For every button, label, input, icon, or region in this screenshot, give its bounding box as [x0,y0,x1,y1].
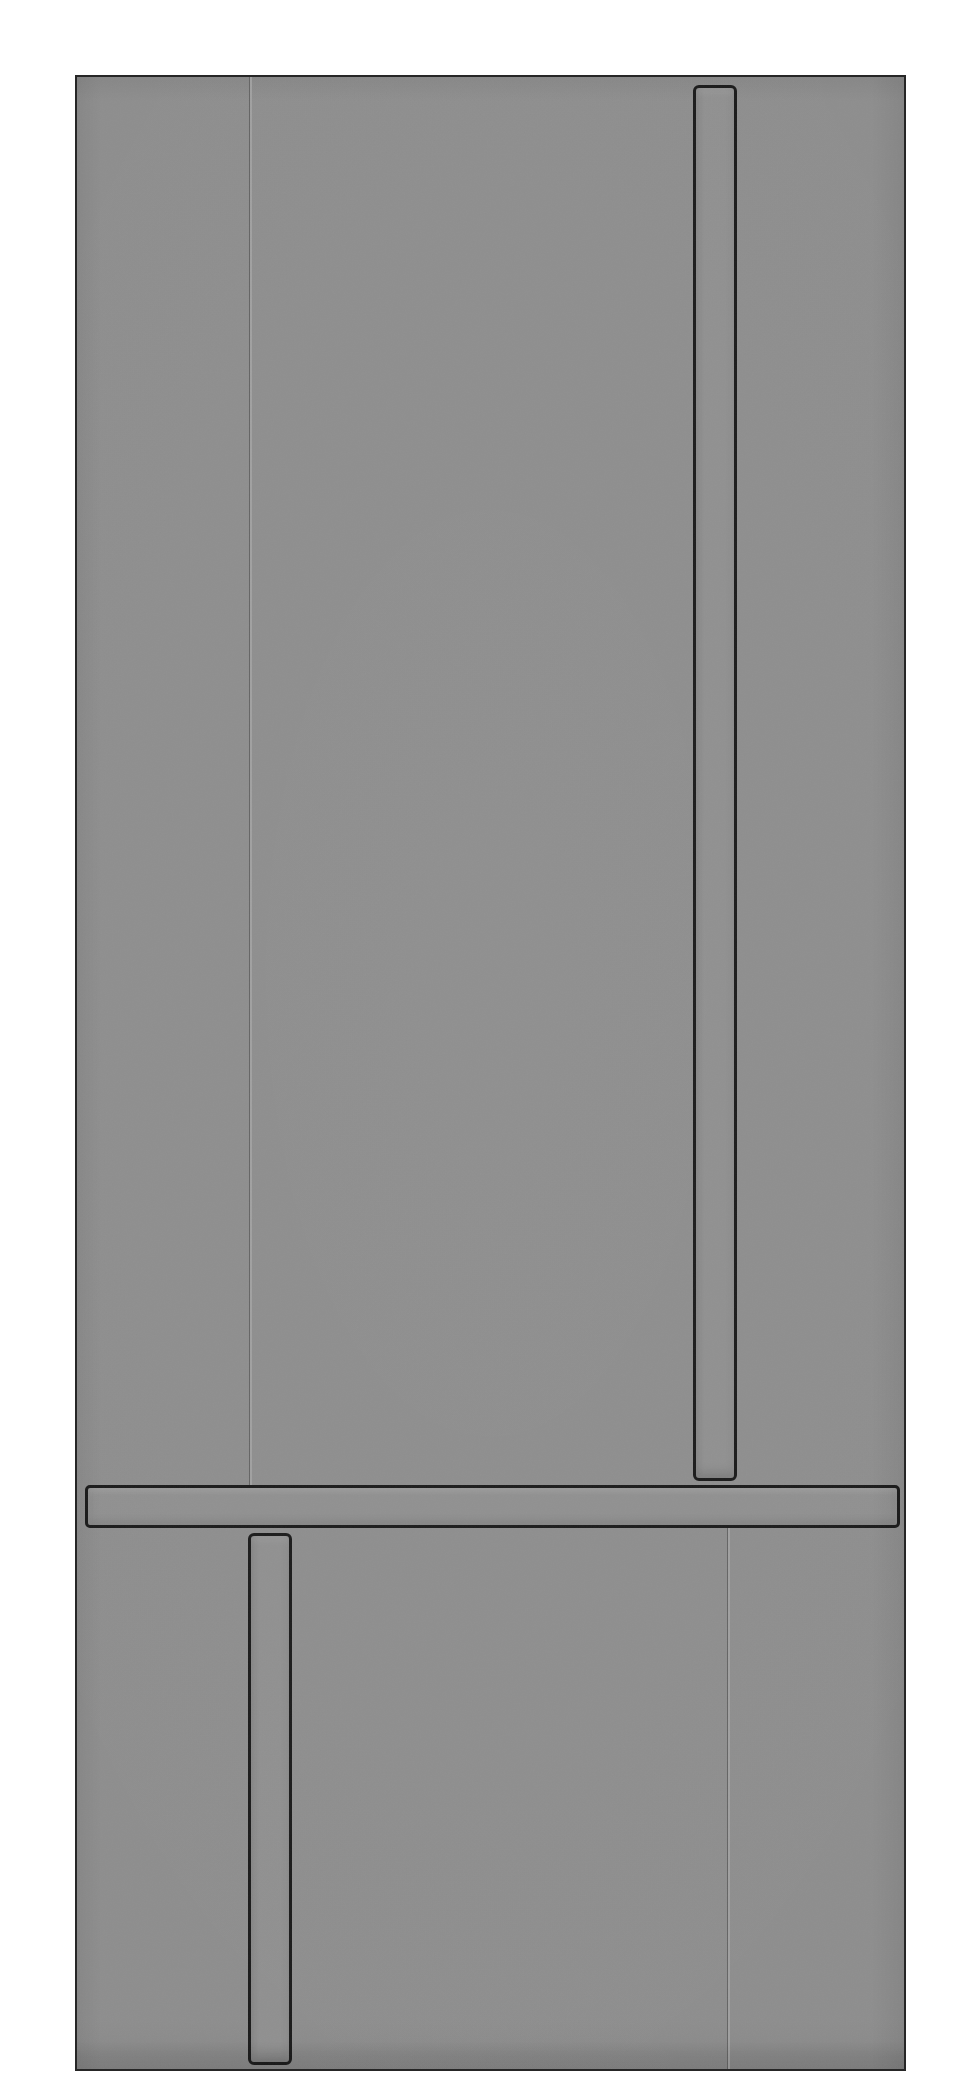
lower-drawer-handle [248,1533,292,2065]
refrigerator-front-panel [75,75,906,2071]
horizontal-rail-handle [85,1485,900,1528]
upper-door-handle [693,85,737,1481]
bottom-shadow-gradient [77,2041,904,2069]
surface-noise-texture [77,77,904,2069]
lower-drawer-seam [727,1528,730,2071]
upper-door-seam [249,77,252,1486]
scene [0,0,980,2100]
panel-vignette-shading [77,77,904,2069]
